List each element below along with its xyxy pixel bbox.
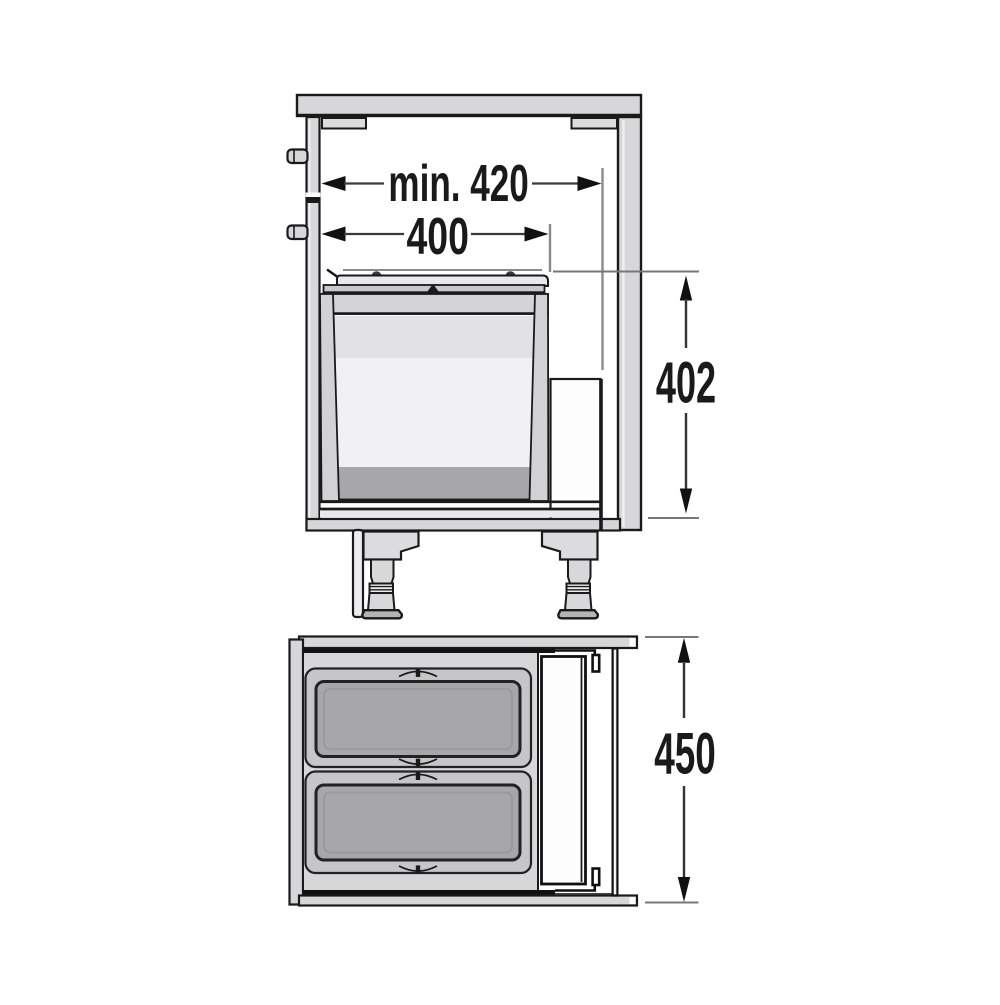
svg-text:min. 420: min. 420 (388, 155, 528, 212)
svg-text:402: 402 (656, 351, 716, 416)
svg-text:400: 400 (406, 207, 468, 266)
svg-text:450: 450 (654, 722, 716, 786)
